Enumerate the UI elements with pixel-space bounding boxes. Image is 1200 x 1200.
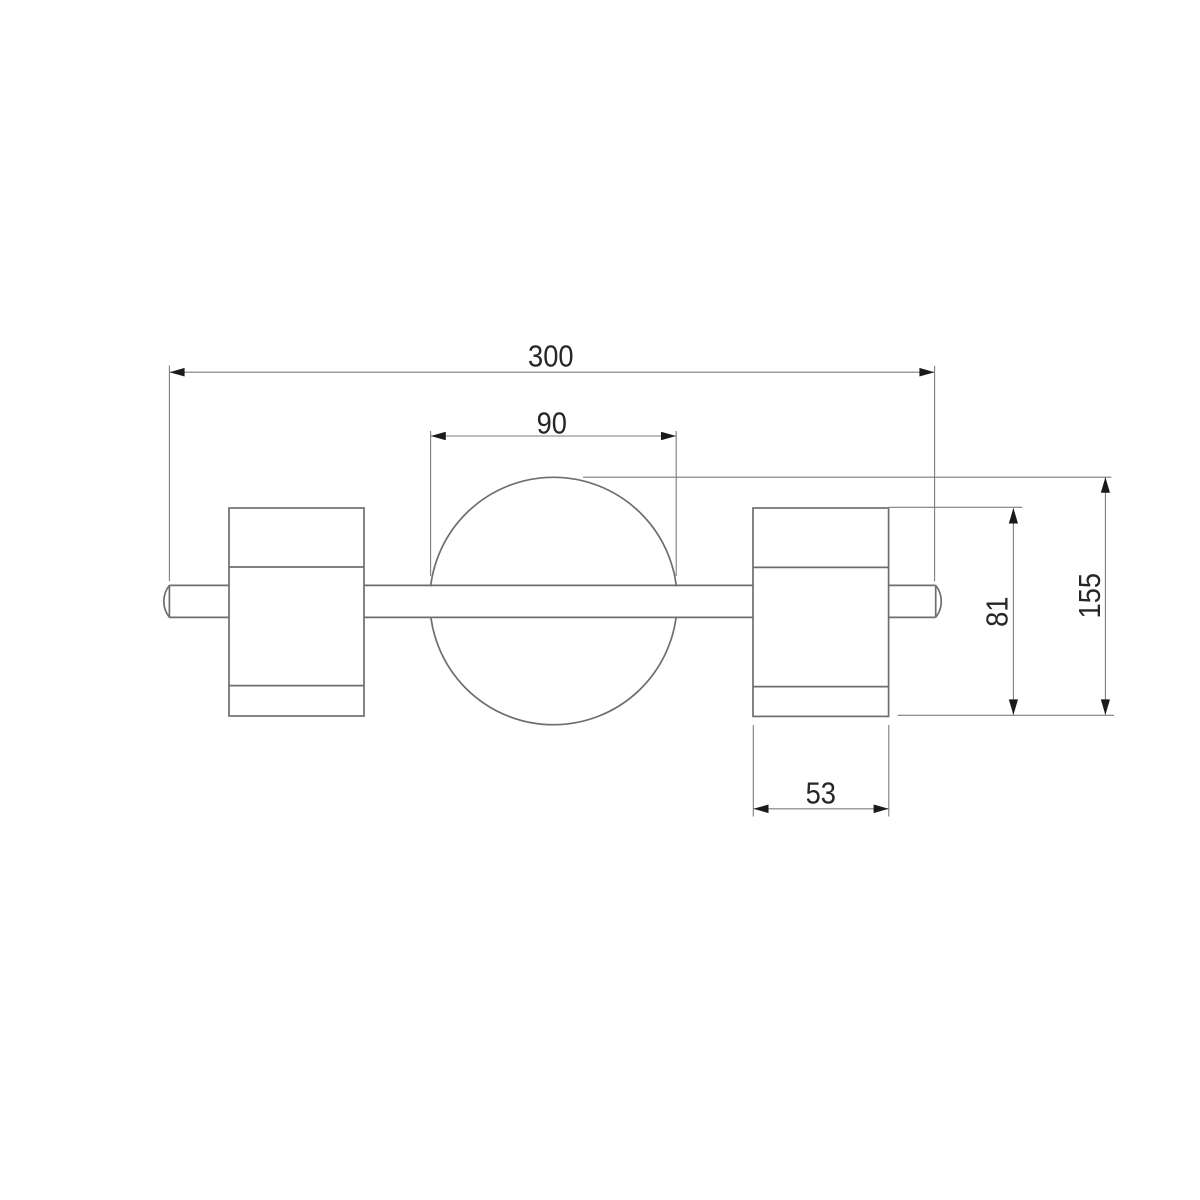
svg-text:90: 90 xyxy=(537,407,567,441)
svg-text:300: 300 xyxy=(528,340,574,374)
svg-text:155: 155 xyxy=(1073,573,1107,619)
svg-text:81: 81 xyxy=(981,597,1015,627)
svg-text:53: 53 xyxy=(806,777,836,811)
